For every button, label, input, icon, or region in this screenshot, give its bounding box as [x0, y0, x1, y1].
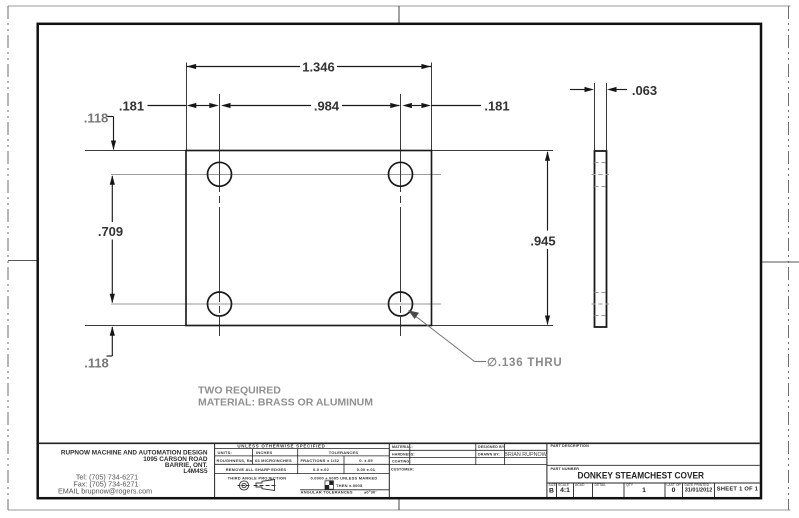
svg-text:PART NUMBER: PART NUMBER	[551, 467, 580, 471]
svg-text:SIZE: SIZE	[549, 483, 557, 487]
svg-text:0.00 ±.01: 0.00 ±.01	[357, 467, 376, 472]
svg-text:TWO REQUIRED: TWO REQUIRED	[198, 385, 281, 397]
svg-text:∅.136 THRU: ∅.136 THRU	[487, 357, 563, 369]
svg-text:QTY: QTY	[626, 483, 634, 487]
svg-text:.945: .945	[530, 234, 555, 249]
svg-text:REMOVE ALL SHARP EDGES: REMOVE ALL SHARP EDGES	[226, 467, 287, 472]
svg-text:BRIAN RUPNOW: BRIAN RUPNOW	[504, 452, 547, 458]
svg-text:DRAWN BY:: DRAWN BY:	[478, 452, 500, 456]
svg-text:.181: .181	[119, 98, 144, 113]
svg-text:.984: .984	[314, 98, 340, 113]
svg-text:UNITS:: UNITS:	[218, 450, 233, 455]
svg-text:CUSTOMER:: CUSTOMER:	[391, 467, 414, 471]
svg-text:DONKEY STEAMCHEST COVER: DONKEY STEAMCHEST COVER	[578, 471, 705, 481]
svg-text:COATING:: COATING:	[392, 459, 411, 463]
svg-text:1.346: 1.346	[302, 59, 335, 74]
svg-text:MATERIAL: BRASS OR ALUMINUM: MATERIAL: BRASS OR ALUMINUM	[198, 397, 373, 409]
svg-text:PART DESCRIPTION: PART DESCRIPTION	[551, 444, 590, 448]
svg-text:DETAIL: DETAIL	[595, 483, 607, 487]
svg-text:THIRD ANGLE PROJECTION: THIRD ANGLE PROJECTION	[228, 475, 287, 480]
svg-text:±0°30': ±0°30'	[364, 490, 377, 495]
svg-text:0. ±.05: 0. ±.05	[359, 458, 373, 463]
svg-text:.118: .118	[84, 111, 109, 126]
svg-text:SHEET 1 OF 1: SHEET 1 OF 1	[717, 487, 759, 493]
svg-text:.181: .181	[484, 98, 509, 113]
svg-text:ROUGHNESS, Ra:: ROUGHNESS, Ra:	[217, 458, 254, 463]
svg-text:31/01/2012: 31/01/2012	[685, 488, 713, 494]
svg-text:.063: .063	[632, 83, 657, 98]
svg-text:THEN ±.0005: THEN ±.0005	[336, 483, 363, 488]
svg-text:4:1: 4:1	[560, 487, 570, 494]
svg-text:DESIGNED BY:: DESIGNED BY:	[478, 445, 506, 449]
svg-text:EMAIL brupnow@rogers.com: EMAIL brupnow@rogers.com	[58, 487, 152, 496]
svg-text:0.0000 ±.0005 UNLESS MARKED: 0.0000 ±.0005 UNLESS MARKED	[311, 475, 378, 480]
svg-text:B: B	[549, 488, 554, 495]
svg-text:ACAD: ACAD	[575, 483, 585, 487]
svg-text:63 MICROINCHES: 63 MICROINCHES	[255, 458, 292, 463]
svg-text:.709: .709	[98, 224, 123, 239]
svg-text:DATE PRINTED: DATE PRINTED	[685, 483, 710, 487]
svg-text:.118: .118	[84, 356, 109, 371]
svg-text:L4M4S5: L4M4S5	[183, 468, 208, 475]
svg-text:INCHES: INCHES	[256, 450, 272, 455]
svg-text:FRACTIONS ± 1/32: FRACTIONS ± 1/32	[301, 458, 340, 463]
svg-text:TOLERANCES: TOLERANCES	[329, 450, 359, 455]
svg-text:HARDNESS:: HARDNESS:	[392, 452, 415, 456]
svg-text:1: 1	[642, 487, 646, 494]
svg-text:ANGULAR TOLERANCES: ANGULAR TOLERANCES	[301, 490, 353, 495]
svg-text:MATERIAL:: MATERIAL:	[392, 445, 413, 449]
svg-text:UNLESS OTHERWISE SPECIFIED: UNLESS OTHERWISE SPECIFIED	[237, 444, 325, 449]
svg-text:0: 0	[672, 487, 676, 494]
svg-text:0.0 ±.02: 0.0 ±.02	[313, 467, 330, 472]
